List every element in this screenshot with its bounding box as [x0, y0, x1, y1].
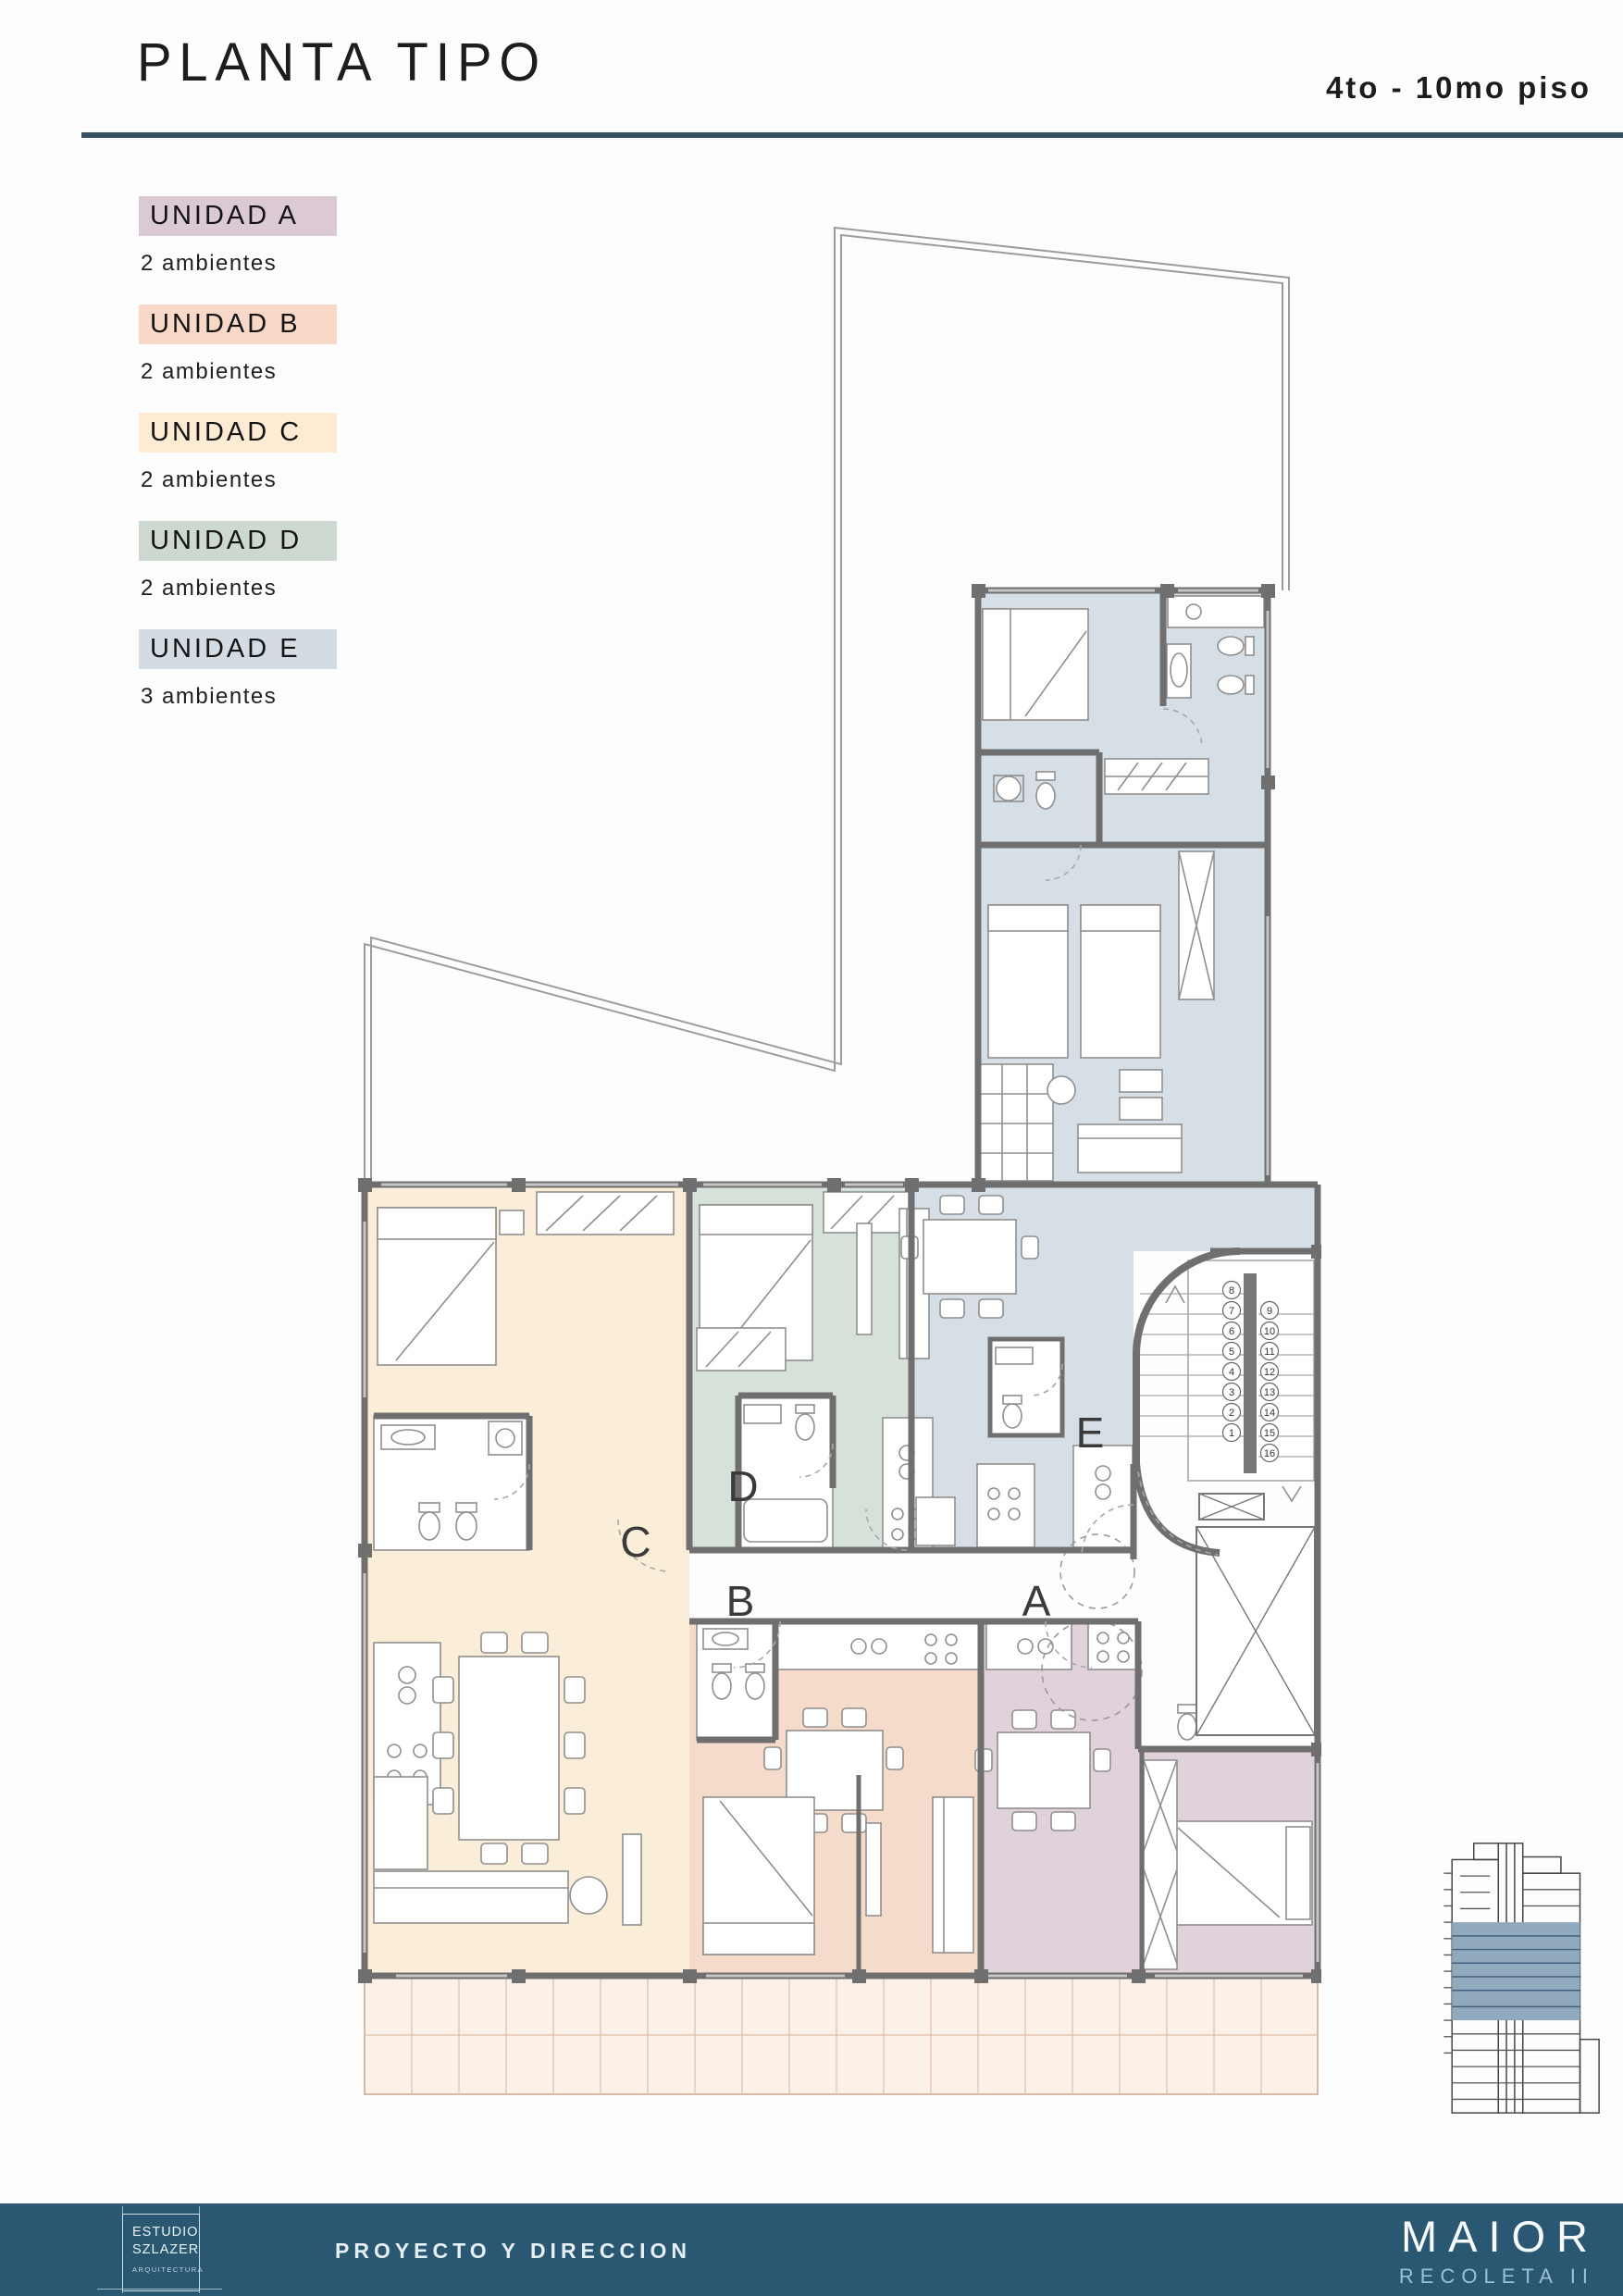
legend-item-e: UNIDAD E 3 ambientes — [139, 629, 337, 710]
svg-text:4: 4 — [1229, 1367, 1234, 1378]
legend-desc-a: 2 ambientes — [141, 251, 337, 277]
page-title: PLANTA TIPO — [137, 31, 547, 93]
balcony-strip — [365, 1976, 1318, 2094]
legend-chip-e: UNIDAD E — [139, 629, 337, 669]
studio-logo: ESTUDIO SZLAZER ARQUITECTURA — [122, 2214, 200, 2291]
svg-text:7: 7 — [1229, 1306, 1234, 1317]
unit-e-region-hall — [1134, 1185, 1318, 1251]
studio-name-line2: SZLAZER — [132, 2241, 199, 2259]
svg-text:3: 3 — [1229, 1387, 1234, 1398]
svg-text:15: 15 — [1264, 1428, 1275, 1439]
legend-desc-c: 2 ambientes — [141, 467, 337, 493]
legend-desc-e: 3 ambientes — [141, 684, 337, 710]
unit-label-c: C — [620, 1518, 650, 1566]
footer-bar: ESTUDIO SZLAZER ARQUITECTURA PROYECTO Y … — [0, 2203, 1623, 2296]
svg-text:10: 10 — [1264, 1326, 1275, 1337]
footer-role-label: PROYECTO Y DIRECCION — [335, 2239, 691, 2264]
legend-item-b: UNIDAD B 2 ambientes — [139, 304, 337, 385]
unit-legend: UNIDAD A 2 ambientes UNIDAD B 2 ambiente… — [139, 196, 337, 738]
svg-text:2: 2 — [1229, 1408, 1234, 1419]
brand-subtitle: RECOLETA II — [1399, 2265, 1594, 2289]
building-elevation-icon — [1414, 1840, 1604, 2114]
unit-label-b: B — [726, 1577, 755, 1625]
svg-text:6: 6 — [1229, 1326, 1234, 1337]
studio-name-line1: ESTUDIO — [132, 2224, 199, 2241]
floor-plan: C D B A E 8 7 6 5 4 3 2 1 9 10 11 12 13 … — [341, 213, 1321, 2156]
legend-desc-d: 2 ambientes — [141, 576, 337, 602]
legend-item-a: UNIDAD A 2 ambientes — [139, 196, 337, 277]
brand-name: MAIOR — [1399, 2211, 1599, 2262]
legend-desc-b: 2 ambientes — [141, 359, 337, 385]
stairs-down-arrow-icon — [1282, 1486, 1301, 1501]
highlighted-floors — [1452, 1922, 1580, 2020]
legend-item-d: UNIDAD D 2 ambientes — [139, 521, 337, 602]
legend-chip-a: UNIDAD A — [139, 196, 337, 236]
legend-chip-c: UNIDAD C — [139, 413, 337, 453]
elevator-shaft — [1196, 1494, 1315, 1735]
svg-text:5: 5 — [1229, 1347, 1234, 1358]
unit-label-e: E — [1076, 1409, 1105, 1457]
floor-range-label: 4to - 10mo piso — [1326, 70, 1592, 105]
unit-label-d: D — [727, 1462, 758, 1510]
legend-item-c: UNIDAD C 2 ambientes — [139, 413, 337, 493]
brand-block: MAIOR RECOLETA II — [1399, 2211, 1588, 2289]
legend-chip-d: UNIDAD D — [139, 521, 337, 561]
svg-text:8: 8 — [1229, 1285, 1234, 1297]
svg-text:9: 9 — [1267, 1306, 1272, 1317]
svg-text:13: 13 — [1264, 1387, 1275, 1398]
svg-text:11: 11 — [1264, 1347, 1274, 1358]
studio-subtitle: ARQUITECTURA — [132, 2265, 199, 2274]
svg-text:12: 12 — [1264, 1367, 1275, 1378]
unit-label-a: A — [1022, 1577, 1051, 1625]
svg-text:14: 14 — [1264, 1408, 1275, 1419]
stairs-up-arrow-icon — [1166, 1286, 1184, 1303]
svg-text:1: 1 — [1229, 1428, 1234, 1439]
legend-chip-b: UNIDAD B — [139, 304, 337, 344]
header-divider — [81, 132, 1623, 138]
svg-text:16: 16 — [1264, 1448, 1275, 1459]
